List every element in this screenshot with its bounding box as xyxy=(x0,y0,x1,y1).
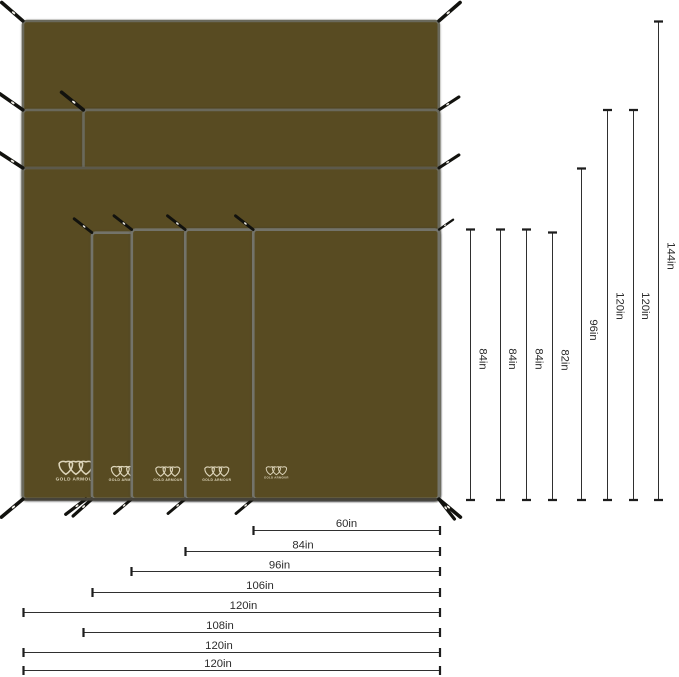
svg-text:84in: 84in xyxy=(477,348,489,369)
svg-text:84in: 84in xyxy=(292,540,313,552)
svg-text:120in: 120in xyxy=(639,292,651,320)
svg-text:96in: 96in xyxy=(587,319,599,340)
svg-text:96in: 96in xyxy=(269,560,290,572)
svg-text:60in: 60in xyxy=(336,518,357,530)
svg-text:144in: 144in xyxy=(665,242,677,270)
svg-text:84in: 84in xyxy=(506,348,518,369)
svg-text:106in: 106in xyxy=(246,580,274,592)
svg-text:82in: 82in xyxy=(559,349,571,370)
svg-text:108in: 108in xyxy=(206,620,234,632)
svg-text:120in: 120in xyxy=(205,640,233,652)
svg-text:120in: 120in xyxy=(204,658,232,670)
svg-text:120in: 120in xyxy=(614,292,626,320)
svg-text:120in: 120in xyxy=(230,600,258,612)
svg-text:84in: 84in xyxy=(533,348,545,369)
